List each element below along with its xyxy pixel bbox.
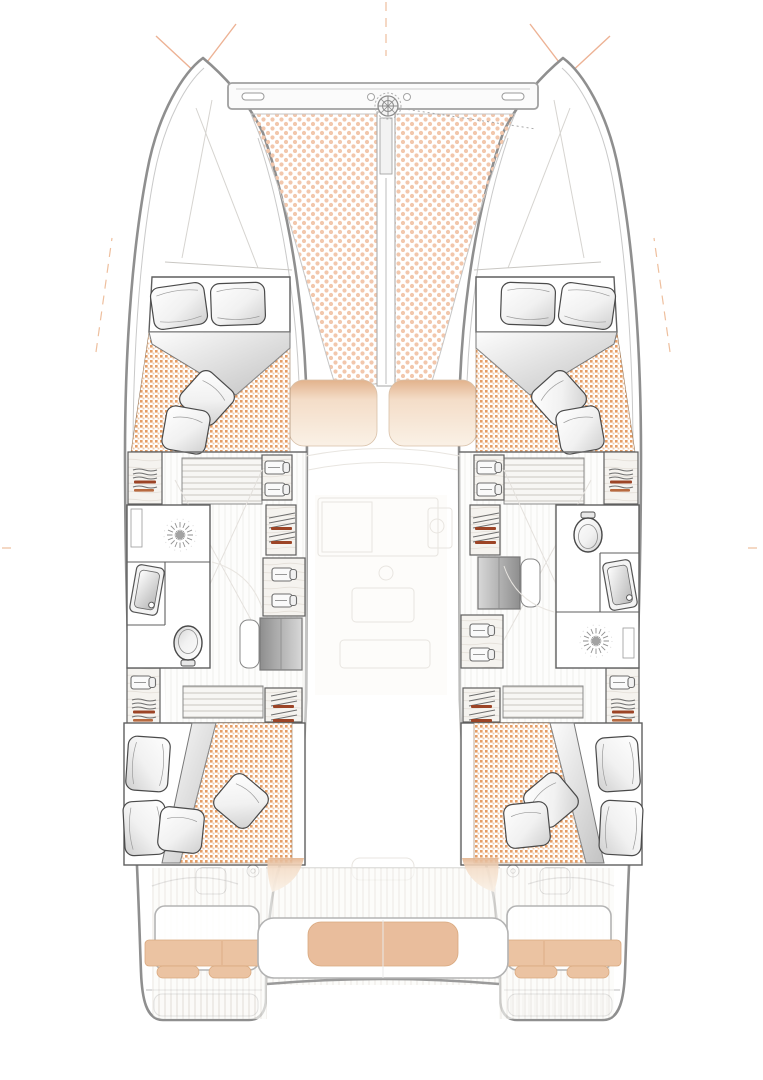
folded-shirt-icon xyxy=(477,461,502,474)
cabin-forward-port xyxy=(131,277,307,455)
folded-shirt-icon xyxy=(272,594,297,607)
floor-plan-page: Sailing catamaran accommodation plan — t… xyxy=(0,0,763,1080)
forward-cockpit xyxy=(289,380,477,470)
companionway-port xyxy=(240,618,302,670)
floor-plan-canvas: Sailing catamaran accommodation plan — t… xyxy=(0,0,763,1080)
folded-shirt-icon xyxy=(610,676,635,689)
folded-shirt-icon xyxy=(272,568,297,581)
throw-pillow-icon xyxy=(157,806,205,854)
seat-pad xyxy=(515,966,557,978)
pillow-icon xyxy=(599,800,644,856)
cabin-steps xyxy=(183,686,263,718)
folded-shirt-icon xyxy=(477,483,502,496)
folded-shirt-icon xyxy=(470,648,495,661)
folded-shirt-icon xyxy=(131,676,156,689)
pillow-icon xyxy=(210,282,265,326)
side-mark-starboard xyxy=(654,238,670,352)
pillow-icon xyxy=(149,281,208,330)
folded-shirt-icon xyxy=(470,624,495,637)
cabin-aft-starboard xyxy=(461,723,643,865)
bench-cushion-starboard xyxy=(503,940,621,966)
cabin-steps xyxy=(503,686,583,718)
cabin-forward-starboard xyxy=(459,277,635,455)
seat-pad xyxy=(157,966,199,978)
cleat-icon xyxy=(242,93,264,100)
pillow-icon xyxy=(595,736,641,793)
side-mark-port xyxy=(96,238,112,352)
seat-pad xyxy=(209,966,251,978)
folded-shirt-icon xyxy=(265,461,290,474)
pillow-icon xyxy=(500,282,555,326)
folded-shirt-icon xyxy=(265,483,290,496)
bowsprit-track xyxy=(380,118,392,174)
cleat-icon xyxy=(502,93,524,100)
cabin-aft-port xyxy=(123,723,305,865)
pillow-icon xyxy=(125,736,171,793)
throw-pillow-icon xyxy=(555,405,606,456)
pillow-icon xyxy=(557,281,616,330)
bench-cushion-port xyxy=(145,940,263,966)
companionway-starboard xyxy=(478,557,540,609)
aft-cockpit xyxy=(145,858,621,1080)
throw-pillow-icon xyxy=(161,405,212,456)
forward-seat-port xyxy=(289,380,377,446)
seat-pad xyxy=(567,966,609,978)
forward-seat-starboard xyxy=(389,380,477,446)
throw-pillow-icon xyxy=(503,801,551,849)
